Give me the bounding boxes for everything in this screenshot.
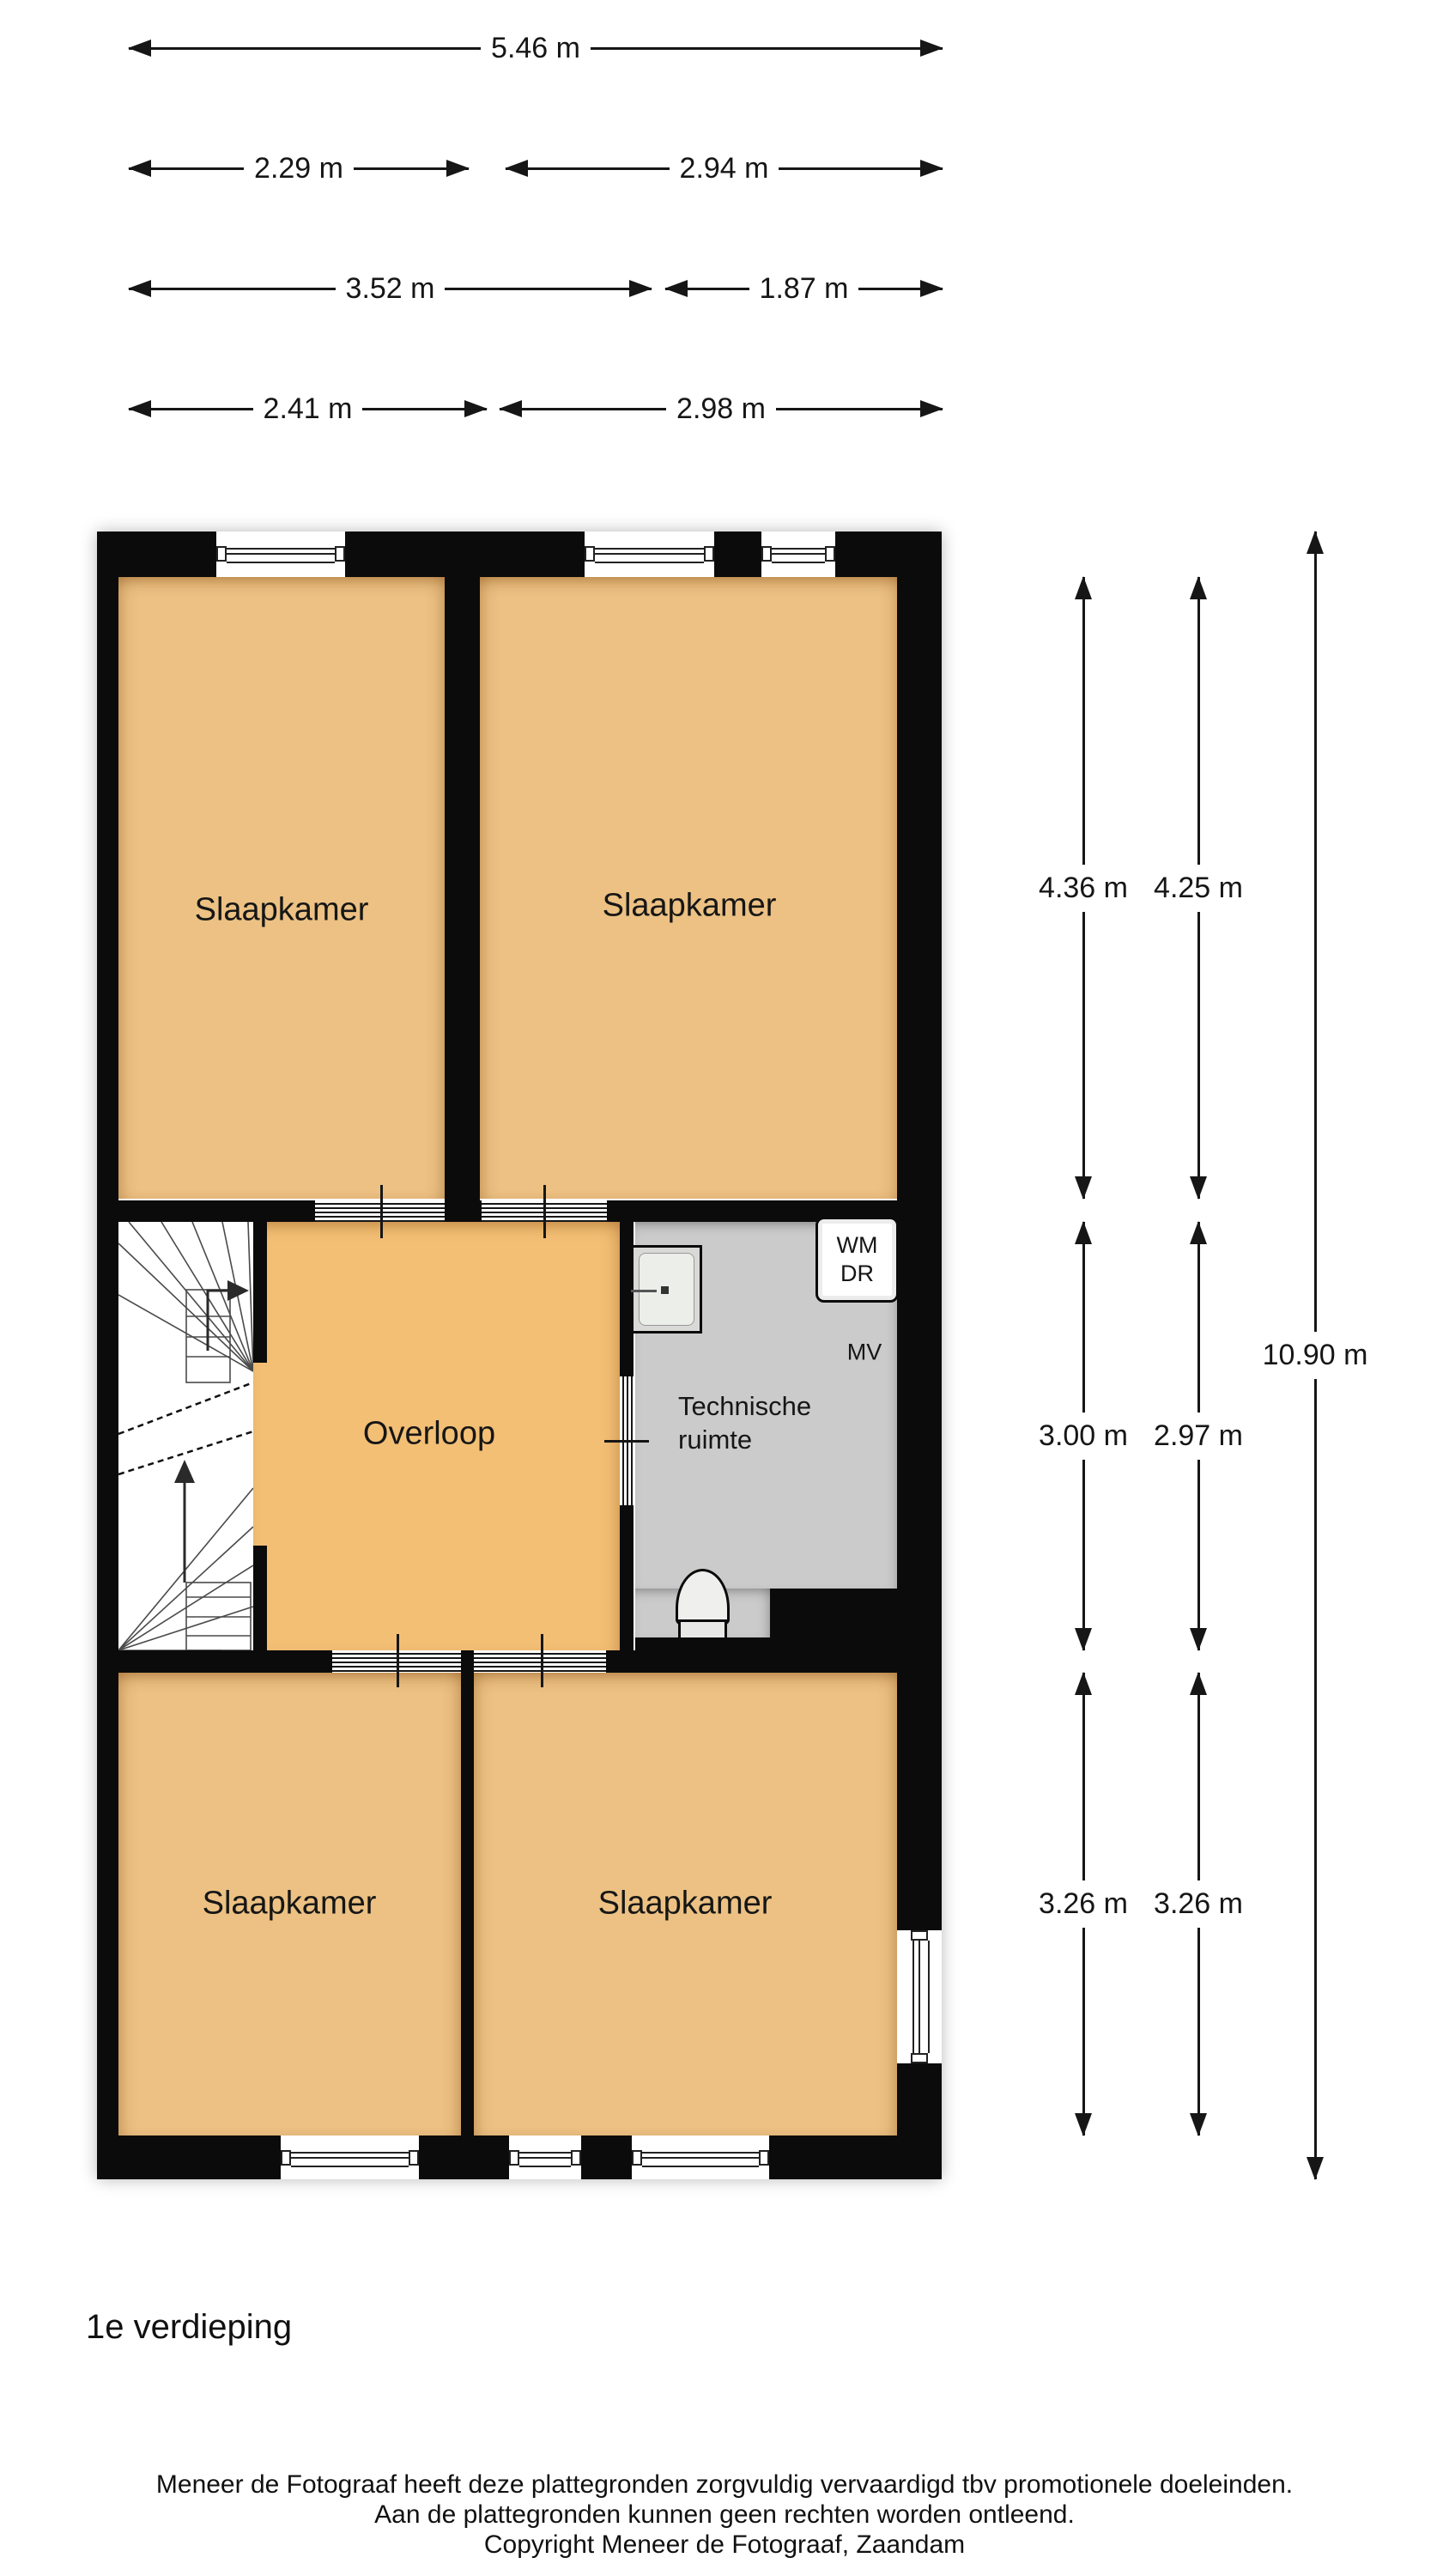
window-bottom-right xyxy=(632,2136,769,2179)
wall-stair-stub-lower xyxy=(253,1546,267,1650)
arrowhead-down-icon xyxy=(1075,2113,1092,2136)
dimension-label: 3.26 m xyxy=(1154,1880,1243,1928)
arrowhead-up-icon xyxy=(1190,1221,1207,1244)
dryer-label: DR xyxy=(840,1260,874,1288)
dimension-label: 10.90 m xyxy=(1263,1332,1368,1379)
dimension-arrow-middle-height-2: 2.97 m xyxy=(1189,1222,1208,1650)
disclaimer-line-1: Meneer de Fotograaf heeft deze plattegro… xyxy=(0,2470,1449,2500)
wall-technical-left-lower xyxy=(620,1505,634,1650)
arrowhead-up-icon xyxy=(1075,576,1092,599)
dimension-label: 5.46 m xyxy=(481,39,591,58)
arrowhead-right-icon xyxy=(920,39,943,57)
window-top-middle xyxy=(585,532,714,577)
window-right-wall xyxy=(897,1930,942,2063)
arrowhead-left-icon xyxy=(499,400,522,417)
arrowhead-right-icon xyxy=(464,400,488,417)
room-label-landing: Overloop xyxy=(363,1416,495,1453)
dimension-arrow-bottom-rooms-height-2: 3.26 m xyxy=(1189,1673,1208,2136)
door-leaf-line xyxy=(541,1634,543,1687)
room-label-bedroom-top-right: Slaapkamer xyxy=(603,888,777,925)
window-bottom-left xyxy=(281,2136,419,2179)
washbasin-icon xyxy=(631,1245,702,1334)
dimension-arrow-total-width: 5.46 m xyxy=(129,39,943,58)
door-leaf-line xyxy=(604,1440,649,1443)
arrowhead-up-icon xyxy=(1075,1221,1092,1244)
wall-exterior-left xyxy=(97,532,118,2179)
dimension-arrow-total-height: 10.90 m xyxy=(1306,532,1325,2179)
arrowhead-left-icon xyxy=(128,400,151,417)
washer-dryer-icon: WM DR xyxy=(815,1217,899,1303)
room-label-bedroom-top-left: Slaapkamer xyxy=(195,892,369,929)
arrowhead-down-icon xyxy=(1307,2157,1324,2180)
dimension-arrow-row2-left: 2.29 m xyxy=(129,159,469,178)
room-label-bedroom-bottom-right: Slaapkamer xyxy=(598,1886,773,1923)
stair-up-arrow-icon xyxy=(174,1460,195,1483)
floor-title: 1e verdieping xyxy=(86,2308,292,2347)
door-leaf-line xyxy=(380,1185,383,1238)
wall-stair-stub-upper xyxy=(253,1222,267,1363)
dimension-label: 3.52 m xyxy=(336,279,446,298)
wall-divider-top-bedrooms xyxy=(445,577,480,1222)
door-leaf-line xyxy=(543,1185,546,1238)
dimension-arrow-middle-height-1: 3.00 m xyxy=(1074,1222,1093,1650)
door-leaf-line xyxy=(397,1634,399,1687)
ventilation-label: MV xyxy=(847,1340,882,1366)
room-bedroom-top-left xyxy=(118,577,445,1199)
wall-toilet-bay-bottom xyxy=(635,1637,770,1673)
wall-technical-corner-block xyxy=(770,1589,897,1673)
arrowhead-left-icon xyxy=(128,39,151,57)
window-top-left xyxy=(216,532,345,577)
arrowhead-right-icon xyxy=(920,280,943,297)
floorplan-drawing: WM DR Slaapkamer Slaapkamer Overloop Tec… xyxy=(97,532,942,2179)
arrowhead-left-icon xyxy=(128,160,151,177)
dimension-arrow-row3-left: 3.52 m xyxy=(129,279,652,298)
dimension-label: 2.94 m xyxy=(670,159,779,178)
arrowhead-up-icon xyxy=(1190,1672,1207,1695)
arrowhead-right-icon xyxy=(920,400,943,417)
arrowhead-left-icon xyxy=(664,280,688,297)
door-bedroom-bottom-right xyxy=(474,1650,606,1673)
dimension-label: 3.00 m xyxy=(1039,1413,1128,1460)
dimension-label: 2.97 m xyxy=(1154,1413,1243,1460)
disclaimer-text: Meneer de Fotograaf heeft deze plattegro… xyxy=(0,2470,1449,2560)
dimension-label: 2.29 m xyxy=(244,159,354,178)
dimension-label: 2.98 m xyxy=(666,399,776,418)
arrowhead-right-icon xyxy=(629,280,652,297)
dimension-label: 4.25 m xyxy=(1154,865,1243,912)
arrowhead-up-icon xyxy=(1075,1672,1092,1695)
dimension-arrow-row4-right: 2.98 m xyxy=(500,399,943,418)
window-top-right xyxy=(761,532,835,577)
arrowhead-right-icon xyxy=(920,160,943,177)
arrowhead-up-icon xyxy=(1307,531,1324,554)
arrowhead-up-icon xyxy=(1190,576,1207,599)
dimension-arrow-bottom-rooms-height-1: 3.26 m xyxy=(1074,1673,1093,2136)
dimension-arrow-row4-left: 2.41 m xyxy=(129,399,487,418)
dimension-label: 1.87 m xyxy=(749,279,859,298)
washer-label: WM xyxy=(837,1231,878,1260)
staircase-icon xyxy=(118,1222,253,1650)
dimension-arrow-top-rooms-height-2: 4.25 m xyxy=(1189,577,1208,1199)
arrowhead-down-icon xyxy=(1190,1628,1207,1651)
room-label-technical: Technische ruimte xyxy=(678,1389,811,1456)
wall-divider-bottom-bedrooms xyxy=(461,1673,474,2136)
disclaimer-line-2: Aan de plattegronden kunnen geen rechten… xyxy=(0,2500,1449,2530)
dimension-label: 3.26 m xyxy=(1039,1880,1128,1928)
arrowhead-down-icon xyxy=(1190,2113,1207,2136)
toilet-tank-icon xyxy=(678,1619,727,1640)
dimension-label: 2.41 m xyxy=(253,399,363,418)
disclaimer-line-3: Copyright Meneer de Fotograaf, Zaandam xyxy=(0,2530,1449,2560)
arrowhead-down-icon xyxy=(1075,1176,1092,1200)
floorplan-page: 5.46 m 2.29 m 2.94 m 3.52 m 1.87 m 2.41 … xyxy=(0,0,1449,2576)
room-label-bedroom-bottom-left: Slaapkamer xyxy=(203,1886,377,1923)
arrowhead-left-icon xyxy=(505,160,528,177)
arrowhead-down-icon xyxy=(1190,1176,1207,1200)
dimension-arrow-row2-right: 2.94 m xyxy=(506,159,943,178)
dimension-arrow-top-rooms-height-1: 4.36 m xyxy=(1074,577,1093,1199)
arrowhead-left-icon xyxy=(128,280,151,297)
dimension-arrow-row3-right: 1.87 m xyxy=(665,279,943,298)
arrowhead-right-icon xyxy=(446,160,470,177)
arrowhead-down-icon xyxy=(1075,1628,1092,1651)
window-bottom-middle xyxy=(509,2136,581,2179)
dimension-label: 4.36 m xyxy=(1039,865,1128,912)
